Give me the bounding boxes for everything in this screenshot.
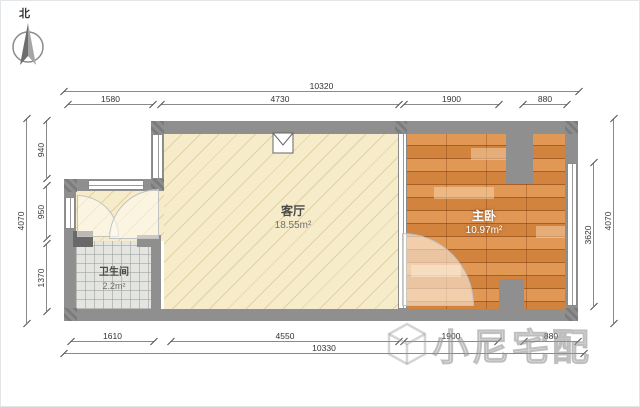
north-compass-icon [9, 17, 53, 81]
wall-corner [64, 179, 77, 192]
wall-corner [64, 308, 77, 321]
dim-top-seg1: 1580 [68, 104, 153, 105]
dim-right-overall: 4070 [613, 119, 614, 323]
bedroom-name: 主卧 [434, 208, 534, 224]
window-left-icon [65, 197, 75, 229]
dim-top-seg4: 880 [523, 104, 567, 105]
wood-plank-highlight [434, 187, 494, 199]
window-right-icon [567, 163, 577, 306]
wall-bottom [64, 309, 578, 321]
north-compass: 北 [9, 5, 53, 85]
bathroom-label: 卫生间 2.2m² [76, 266, 152, 292]
window-upper-left-icon [88, 180, 144, 190]
bedroom-label: 主卧 10.97m² [434, 208, 534, 238]
dim-bottom-seg2: 4550 [171, 341, 399, 342]
watermark-text: 小尼宅配 [432, 317, 592, 371]
floor-plan-canvas: 北 客厅 18.5 [0, 0, 640, 407]
dim-top-seg2: 4730 [161, 104, 399, 105]
living-room-name: 客厅 [243, 203, 343, 219]
wall-closet-stub-top [506, 133, 533, 184]
dim-top-overall: 10320 [64, 91, 579, 92]
dim-left-seg2: 950 [46, 186, 47, 238]
dim-left-seg1: 940 [46, 121, 47, 178]
bathroom-area: 2.2m² [76, 280, 152, 292]
wall-closet-stub-bottom [499, 279, 524, 309]
dim-bottom-seg1: 1610 [71, 341, 154, 342]
wood-plank-highlight [536, 226, 566, 238]
living-room-area: 18.55m² [243, 219, 343, 233]
wall-corner [565, 308, 578, 321]
cube-logo-icon [387, 322, 427, 366]
dim-left-seg3: 1370 [46, 244, 47, 311]
bedroom-area: 10.97m² [434, 224, 534, 238]
wall-corner [151, 121, 164, 134]
window-living-west-icon [152, 134, 163, 179]
ac-unit-icon [272, 132, 294, 154]
wall-bathroom-east [151, 241, 161, 309]
wall-corner [565, 121, 578, 134]
dim-right-inner: 3620 [593, 163, 594, 306]
dim-bottom-seg4: 880 [524, 341, 578, 342]
dim-top-seg3: 1900 [404, 104, 499, 105]
dim-bottom-seg3: 1900 [404, 341, 498, 342]
dim-bottom-overall: 10330 [64, 353, 584, 354]
living-room-label: 客厅 18.55m² [243, 203, 343, 233]
watermark: 小尼宅配 [387, 317, 592, 371]
dim-left-overall: 4070 [26, 119, 27, 323]
bathroom-name: 卫生间 [76, 266, 152, 280]
